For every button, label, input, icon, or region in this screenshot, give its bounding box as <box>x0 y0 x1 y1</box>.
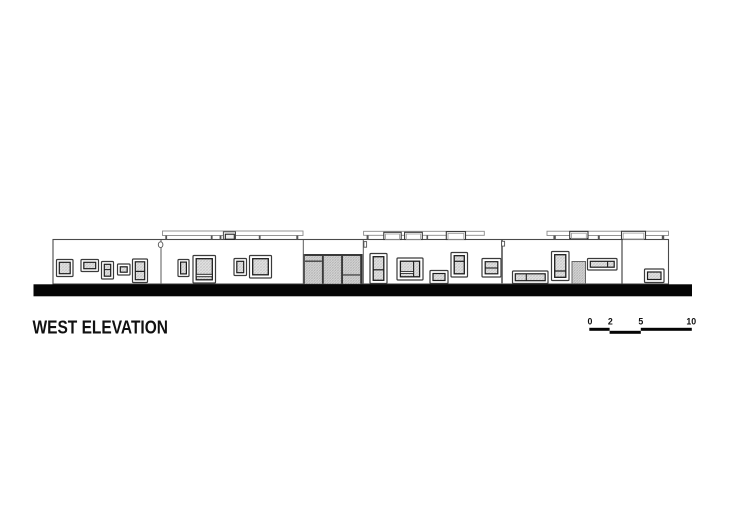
svg-text:10: 10 <box>686 317 696 327</box>
svg-text:2: 2 <box>608 317 613 327</box>
svg-text:0: 0 <box>588 317 593 327</box>
svg-text:5: 5 <box>638 317 643 327</box>
svg-text:WEST ELEVATION: WEST ELEVATION <box>33 318 169 338</box>
